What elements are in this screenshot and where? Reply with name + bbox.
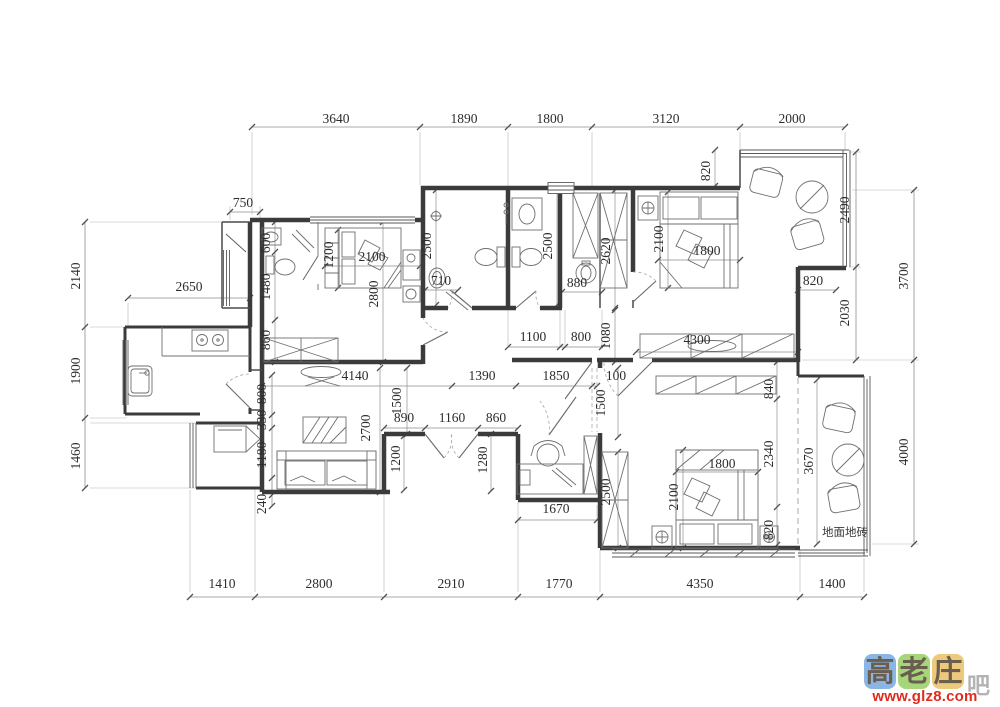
armchair	[789, 216, 826, 251]
floorplan-page: 3640189018003120200014102800291017704350…	[0, 0, 1000, 707]
dimension-label: 1390	[469, 368, 496, 383]
dimension-label: 750	[233, 195, 254, 210]
bedroom2-furniture	[584, 376, 778, 548]
kitchen-fixtures	[128, 327, 250, 396]
office-chair	[537, 444, 559, 466]
dimension-label: 3640	[323, 111, 350, 126]
dimension-label: 1800	[709, 456, 736, 471]
dimension-label: 1400	[819, 576, 846, 591]
floor-plan-canvas: 3640189018003120200014102800291017704350…	[0, 0, 1000, 707]
door-arcs	[226, 272, 798, 544]
toilet	[475, 249, 497, 266]
balcony-bottom-furniture	[822, 400, 864, 514]
dimension-label: 2490	[837, 196, 852, 223]
dimension-label: 800	[254, 384, 269, 405]
dimension-label: 1080	[598, 322, 613, 349]
armchair	[826, 481, 860, 514]
dining-table	[301, 367, 341, 378]
dimension-label: 1480	[258, 273, 273, 300]
toilet	[275, 259, 295, 275]
dimension-label: 2100	[651, 225, 666, 252]
dimension-label: 2500	[419, 232, 434, 259]
dimension-label: 2620	[598, 237, 613, 264]
watermark-tile-3: 庄	[932, 654, 964, 689]
dimension-label: 3670	[801, 447, 816, 474]
dimension-label: 2650	[176, 279, 203, 294]
dimension-label: 860	[486, 410, 507, 425]
dimension-label: 2500	[598, 478, 613, 505]
dimension-label: 1100	[520, 329, 547, 344]
dimension-label: 1280	[475, 446, 490, 473]
dimension-label: 240	[254, 494, 269, 515]
dimension-label: 2910	[438, 576, 465, 591]
dimension-label: 100	[606, 368, 627, 383]
dimension-label: 820	[698, 161, 713, 182]
dimension-label: 710	[431, 273, 452, 288]
dimension-label: 4140	[342, 368, 369, 383]
dimension-label: 2800	[306, 576, 333, 591]
dimension-label: 2140	[68, 262, 83, 289]
dimension-label: 1670	[543, 501, 570, 516]
watermark-url: www.glz8.com	[856, 688, 994, 705]
dimension-label: 820	[803, 273, 824, 288]
stove	[192, 330, 228, 351]
dimension-label: 2030	[837, 299, 852, 326]
dimension-label: 1850	[543, 368, 570, 383]
bedroom1-furniture	[262, 222, 420, 362]
tv-panel	[303, 417, 346, 443]
dimension-label: 1500	[593, 389, 608, 416]
dimension-label: 1800	[694, 243, 721, 258]
desk	[517, 464, 583, 494]
dimension-label: 1800	[537, 111, 564, 126]
dimension-label: 1160	[439, 410, 466, 425]
dimension-label: 1890	[451, 111, 478, 126]
dimension-label: 890	[394, 410, 415, 425]
dimension-label: 1770	[546, 576, 573, 591]
dimension-label: 600	[258, 233, 273, 254]
dimension-label: 1200	[388, 445, 403, 472]
dimension-label: 1200	[321, 241, 336, 268]
dimension-label: 2800	[366, 280, 381, 307]
dimension-label: 2500	[540, 232, 555, 259]
vanity	[512, 198, 542, 230]
dimension-label: 3700	[896, 262, 911, 289]
dimension-label: 4350	[687, 576, 714, 591]
dimension-label: 3120	[653, 111, 680, 126]
dimension-label: 2700	[358, 414, 373, 441]
dimension-label: 1410	[209, 576, 236, 591]
nightstand	[403, 250, 420, 280]
watermark-tile-2: 老	[898, 654, 930, 689]
dimension-label: 4300	[684, 332, 711, 347]
dimension-label: 860	[258, 330, 273, 351]
dimension-label: 2000	[779, 111, 806, 126]
floor-note: 地面地砖	[822, 525, 868, 539]
dimension-label: 820	[761, 520, 776, 541]
watermark: 高 老 庄 吧 www.glz8.com	[856, 654, 994, 705]
dimension-label: 1180	[254, 442, 269, 469]
master-bedroom-furniture	[638, 192, 794, 358]
armchair	[749, 164, 785, 198]
dimension-label: 800	[571, 329, 592, 344]
dimension-label: 880	[567, 275, 588, 290]
dimension-label: 840	[761, 379, 776, 400]
dimension-label: 2100	[359, 249, 386, 264]
dimension-label: 1460	[68, 442, 83, 469]
dimension-label: 2100	[666, 483, 681, 510]
dimension-label: 330	[254, 410, 269, 431]
dimension-label: 2340	[761, 440, 776, 467]
doors	[226, 256, 798, 544]
armchair	[822, 400, 857, 434]
dimension-label: 4000	[896, 438, 911, 465]
watermark-tile-1: 高	[864, 654, 896, 689]
toilet	[520, 249, 542, 266]
dimension-label: 1900	[68, 357, 83, 384]
bathroom-a-fixtures	[429, 210, 505, 310]
balcony-top-furniture	[749, 164, 828, 251]
study-furniture	[517, 441, 583, 495]
sofa	[277, 451, 376, 460]
